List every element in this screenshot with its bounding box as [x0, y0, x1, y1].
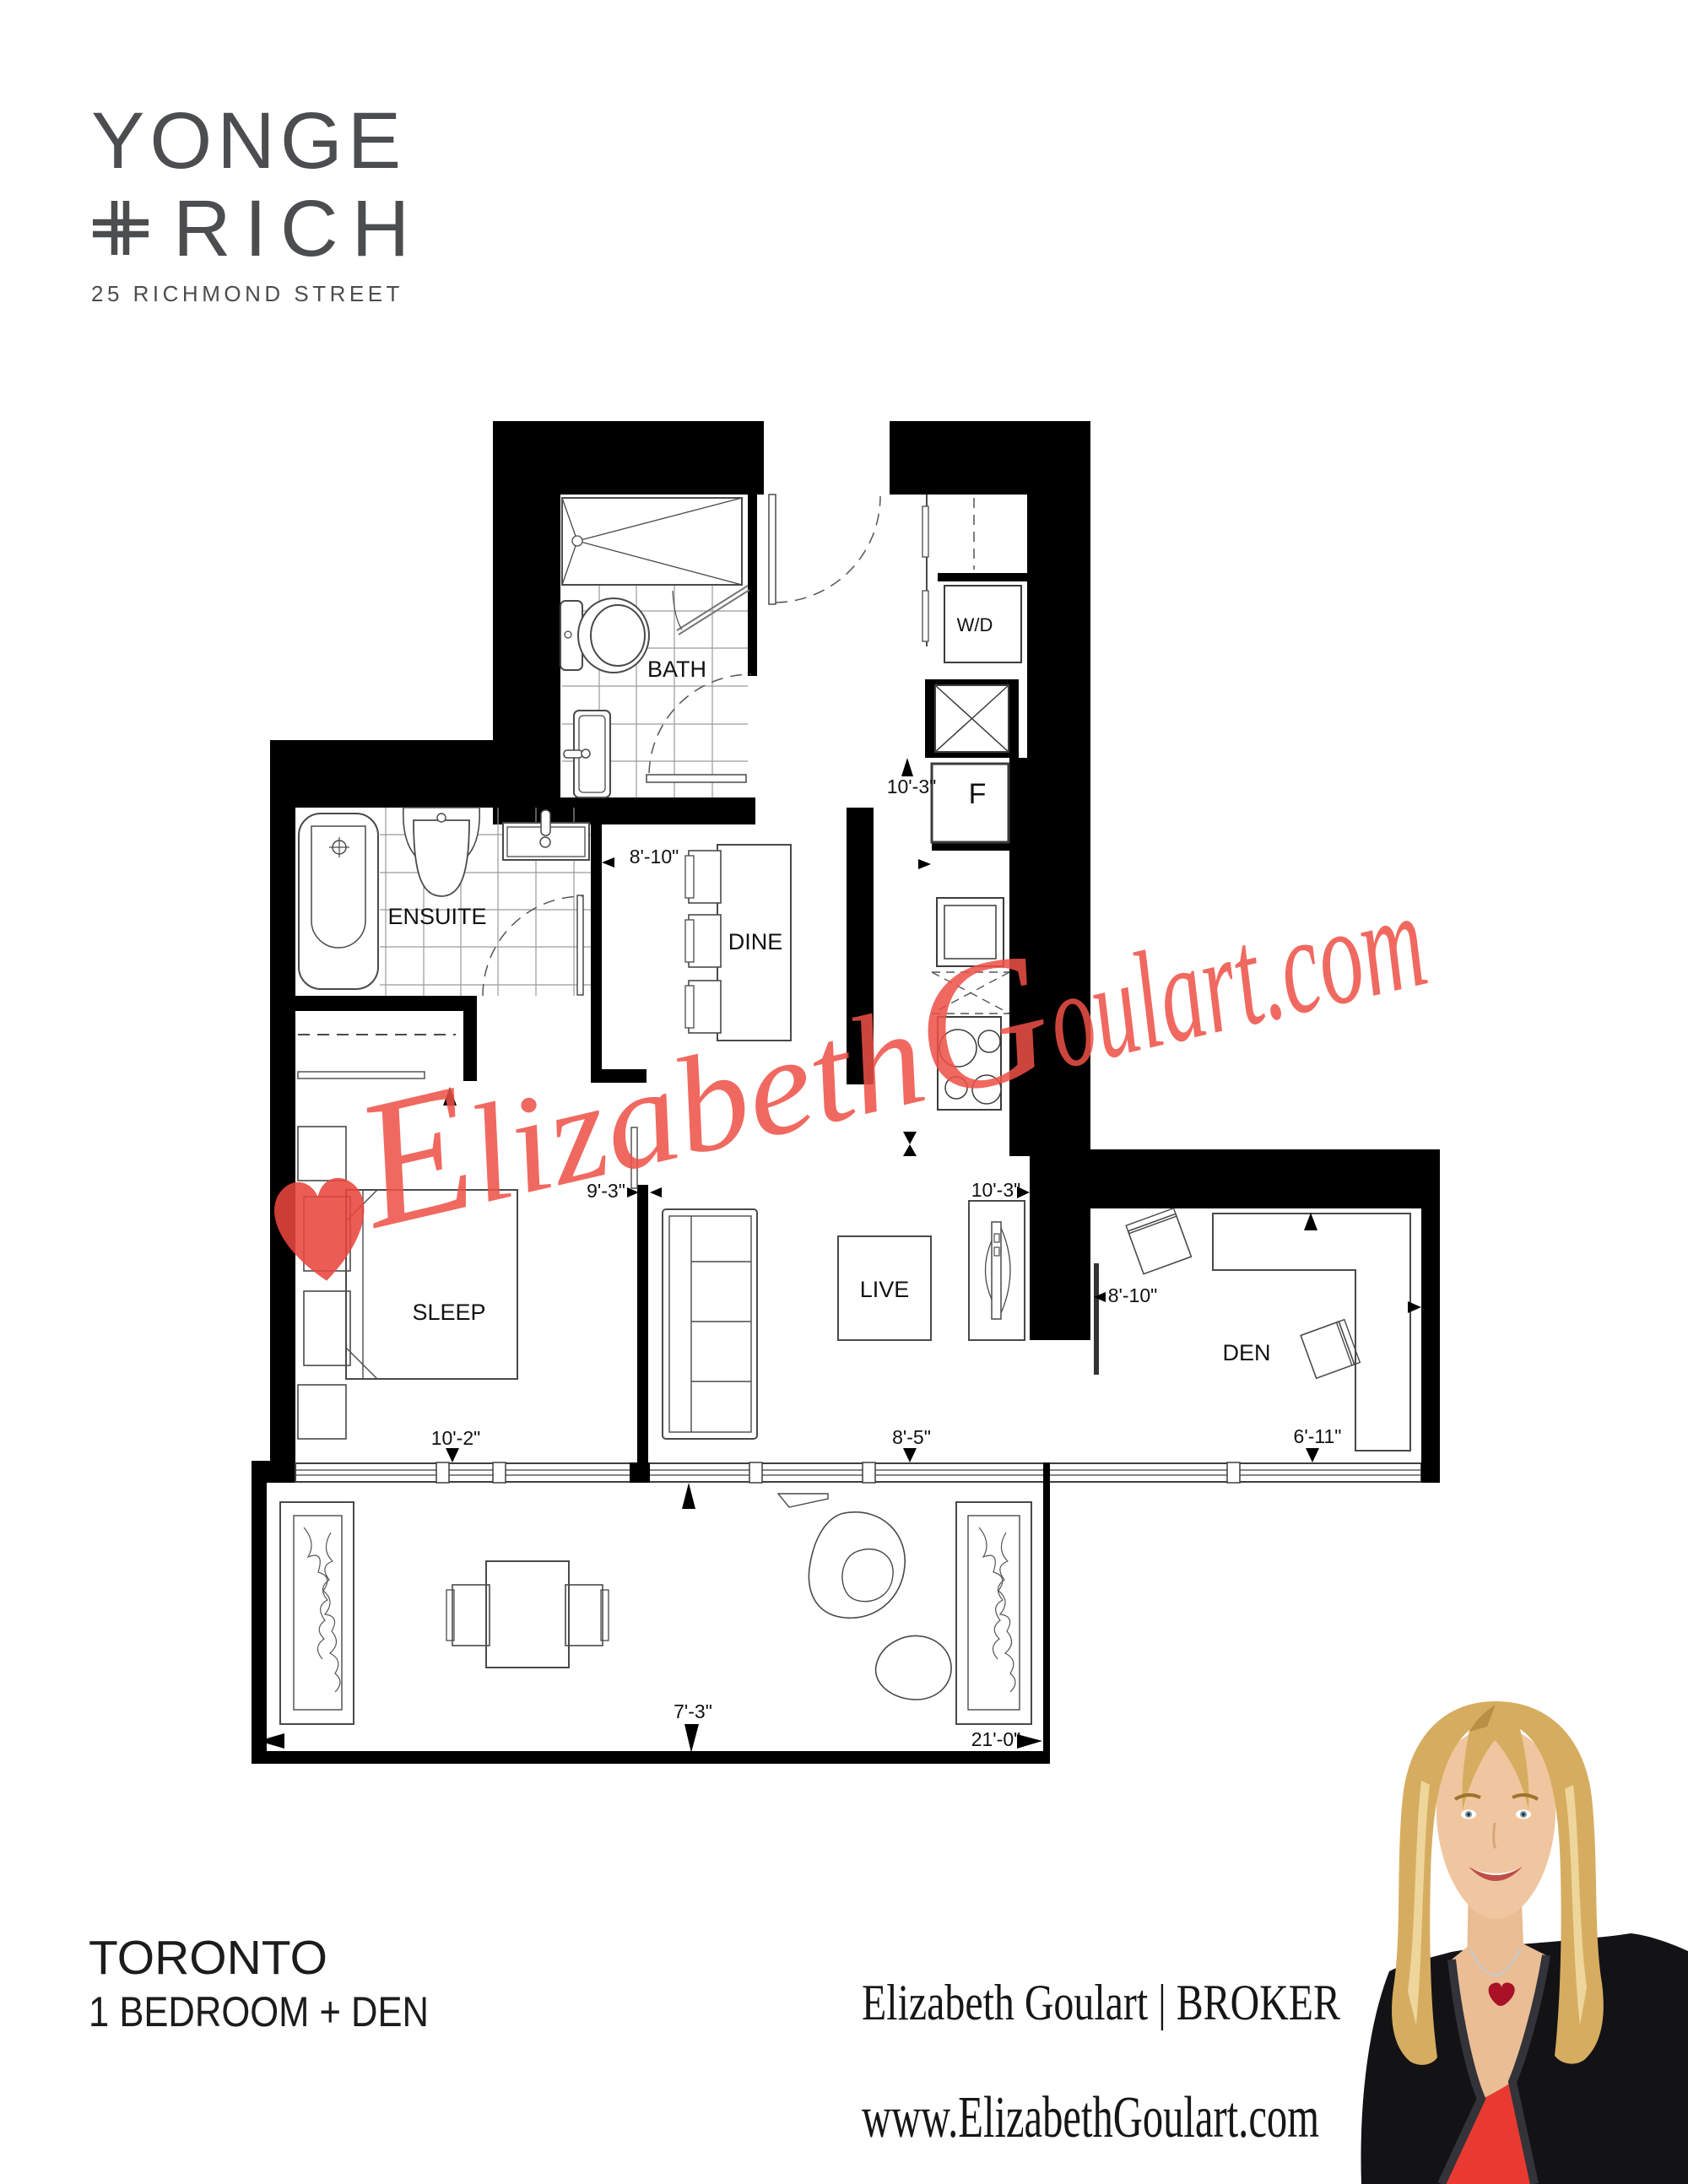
svg-text:8'-10": 8'-10": [630, 846, 679, 868]
svg-text:21'-0": 21'-0": [971, 1728, 1021, 1750]
svg-text:ENSUITE: ENSUITE: [387, 904, 486, 929]
svg-text:10'-3": 10'-3": [971, 1179, 1021, 1201]
svg-text:8'-5": 8'-5": [892, 1426, 931, 1448]
svg-text:25 RICHMOND STREET: 25 RICHMOND STREET: [91, 281, 403, 306]
svg-text:W/D: W/D: [957, 614, 993, 635]
svg-text:TORONTO: TORONTO: [89, 1931, 327, 1985]
svg-text:SLEEP: SLEEP: [412, 1300, 485, 1325]
svg-text:8'-10": 8'-10": [1108, 1284, 1158, 1306]
svg-text:LIVE: LIVE: [860, 1277, 910, 1302]
svg-text:YONGE: YONGE: [91, 96, 406, 186]
svg-text:DEN: DEN: [1222, 1340, 1270, 1365]
svg-text:DINE: DINE: [728, 929, 783, 954]
svg-text:6'-11": 6'-11": [1294, 1425, 1342, 1447]
svg-text:7'-3": 7'-3": [674, 1700, 712, 1722]
svg-text:www.ElizabethGoulart.com: www.ElizabethGoulart.com: [862, 2085, 1319, 2150]
svg-text:RICH: RICH: [173, 184, 423, 273]
svg-text:10'-2": 10'-2": [431, 1427, 481, 1449]
svg-text:1 BEDROOM + DEN: 1 BEDROOM + DEN: [89, 1988, 429, 2035]
svg-text:10'-3": 10'-3": [887, 776, 937, 797]
svg-text:Elizabeth Goulart | BROKER: Elizabeth Goulart | BROKER: [862, 1975, 1340, 2030]
svg-text:F: F: [969, 778, 987, 810]
svg-text:BATH: BATH: [647, 657, 706, 682]
